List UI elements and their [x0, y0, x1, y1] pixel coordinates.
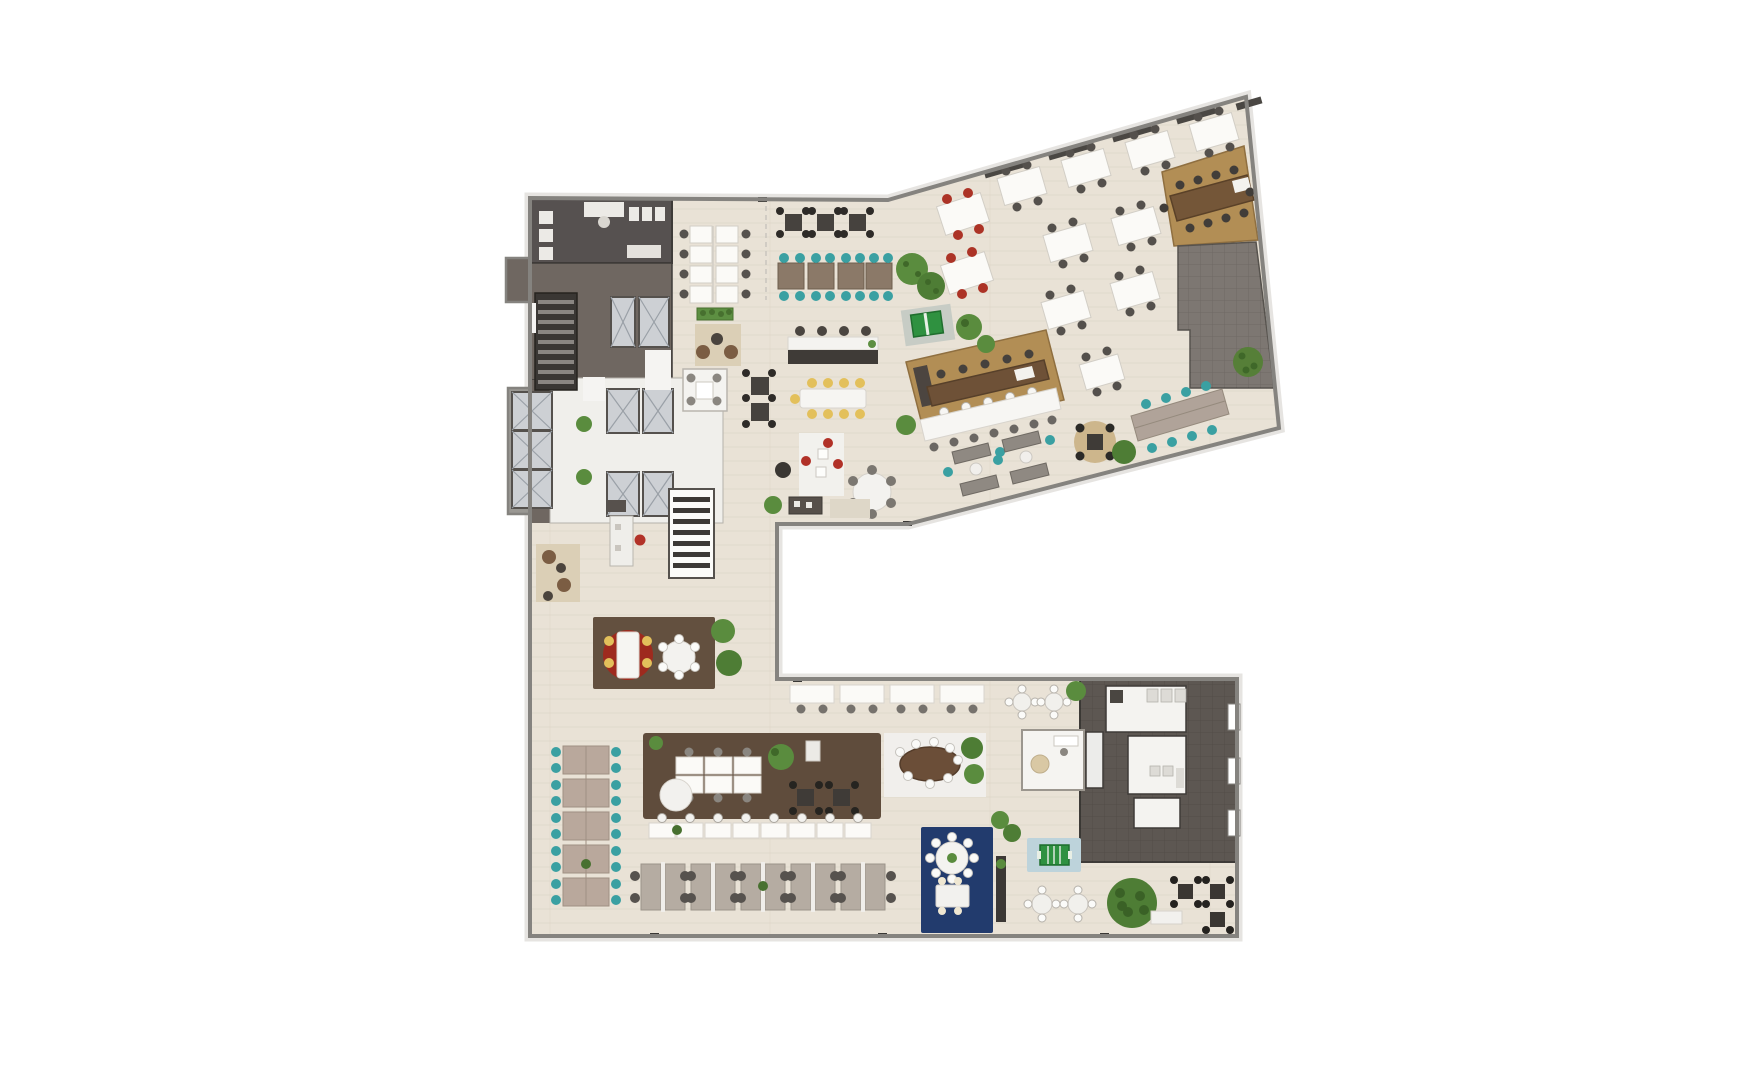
lounge-bush-2 [716, 650, 742, 676]
wait-rug [536, 544, 580, 602]
dais-plant [977, 335, 995, 353]
sofa-table-a [970, 463, 982, 475]
oval-meet-bush-1 [961, 737, 983, 759]
oval-meet-bush-2 [964, 764, 984, 784]
blue-rug-table-plant [947, 853, 957, 863]
desk-row-plant [896, 415, 916, 435]
meeting-nook-table [696, 382, 713, 399]
kitchen-sink [598, 216, 610, 228]
lounge-nook-rug [695, 324, 741, 366]
cafe-table-n1 [1013, 693, 1031, 711]
sofa-table-b [1020, 451, 1032, 463]
elevator-lobby-1 [607, 389, 639, 433]
tree-mid-texture [961, 319, 969, 327]
console-desk [789, 497, 822, 514]
quiet-room-armchair [1031, 755, 1049, 773]
coworking-bush-texture [771, 748, 779, 756]
core-door-landing-a [583, 377, 605, 401]
divider-plant [996, 859, 1006, 869]
blue-rug-bench [936, 885, 969, 907]
core-door-landing-b [645, 350, 671, 390]
red-rug-table [617, 632, 639, 678]
elevator-lobby-2 [643, 389, 673, 433]
bar-counter-front [788, 350, 878, 364]
wc-room-c [1134, 798, 1180, 828]
tree-cafe [1066, 681, 1086, 701]
plant-pair-2 [1003, 824, 1021, 842]
cafe-dark-tables [785, 214, 866, 231]
reception-side-table [608, 500, 626, 512]
wc-counter [1176, 768, 1184, 788]
elevator-core-1 [611, 297, 635, 347]
canteen-table [800, 389, 866, 408]
booth-semicircle [660, 779, 692, 811]
elevator-core-2 [639, 297, 669, 347]
kitchen-fixtures-right [629, 207, 665, 221]
tree-east [1112, 440, 1136, 464]
floor-plan-svg [0, 0, 1755, 1080]
floor-plan [506, 97, 1279, 938]
bar-plant [868, 340, 876, 348]
bistro-table-dark [775, 462, 791, 478]
storage-room [1086, 732, 1103, 788]
coworking-bush [768, 744, 794, 770]
lounge-round-table [1087, 434, 1103, 450]
coworking-plant [649, 736, 663, 750]
quiet-room-chair [1060, 748, 1068, 756]
floor-plan-figure [0, 0, 1755, 1080]
desk-row-mid-plant [672, 825, 682, 835]
lounge-bush-1 [711, 619, 735, 643]
teal-desk-plant [581, 859, 591, 869]
reception-chair-red [635, 535, 646, 546]
lounge-nook-table [711, 333, 723, 345]
tree-dense [1107, 878, 1157, 928]
terrace-white-table [1151, 911, 1182, 924]
console-plant [764, 496, 782, 514]
wc-dark-fixture [1110, 690, 1123, 703]
bench-plant [758, 881, 768, 891]
cafe-table-s2 [1068, 894, 1088, 914]
kitchen-fixtures-left [539, 211, 553, 260]
kitchen-counter-low [627, 245, 661, 258]
accent-rug [830, 499, 870, 518]
bar-counter-top [788, 337, 878, 350]
page [0, 0, 1755, 1080]
stairwell-a-steps [538, 300, 574, 384]
quiet-room-desk [1054, 736, 1078, 746]
reception-desk [610, 516, 633, 566]
cafe-table-n2 [1045, 693, 1063, 711]
coworking-kitchen [806, 741, 820, 761]
wc-stalls [1147, 689, 1186, 702]
lobby-plant-1 [576, 416, 592, 432]
bush-pair-2 [917, 272, 945, 300]
lobby-plant-2 [576, 469, 592, 485]
cafe-table-s1 [1032, 894, 1052, 914]
kitchen-counter-top [584, 202, 624, 217]
tree-mid [956, 314, 982, 340]
